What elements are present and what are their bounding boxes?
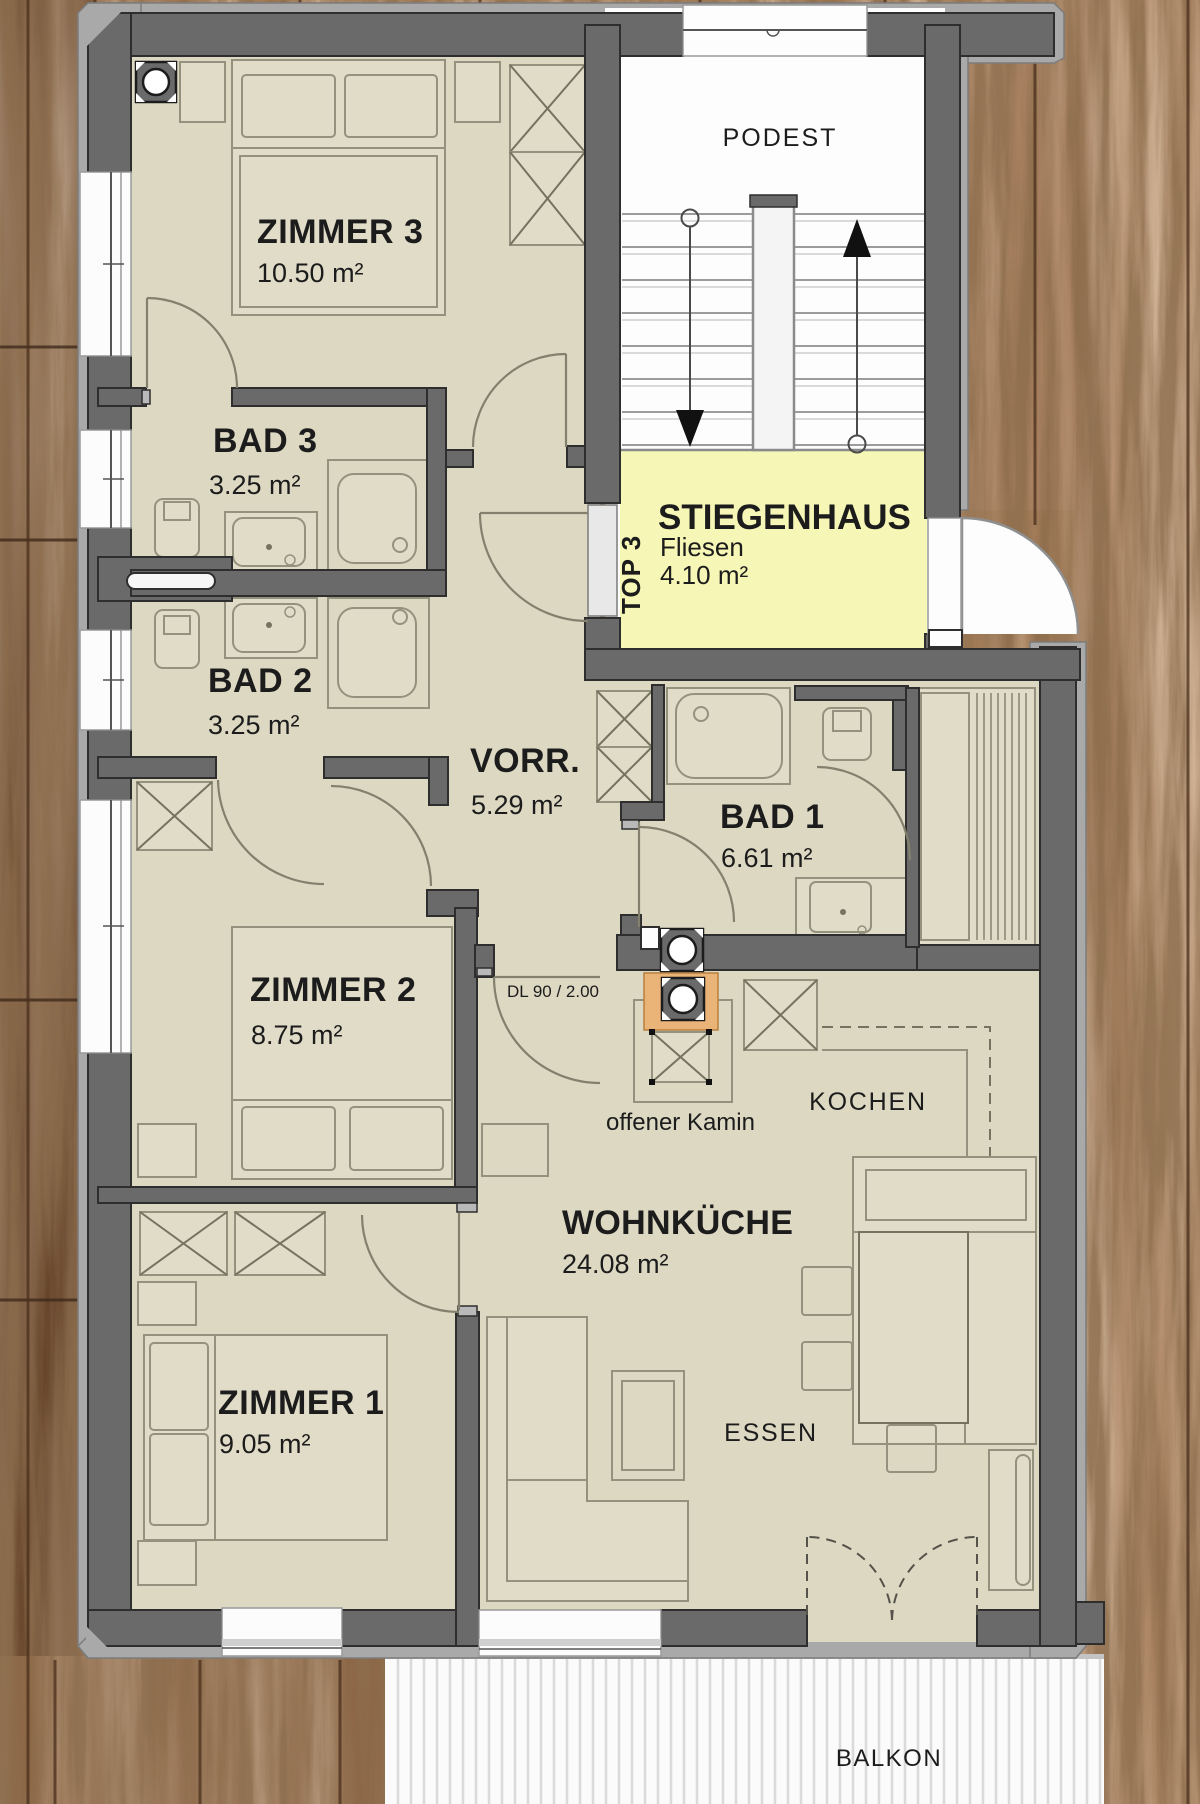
svg-text:4.10 m²: 4.10 m² (660, 560, 748, 590)
svg-text:BAD 1: BAD 1 (720, 798, 825, 836)
svg-text:9.05 m²: 9.05 m² (219, 1429, 311, 1459)
svg-text:BALKON: BALKON (836, 1745, 942, 1772)
svg-text:8.75 m²: 8.75 m² (251, 1020, 343, 1050)
svg-text:10.50 m²: 10.50 m² (257, 258, 364, 288)
svg-text:DL 90 / 2.00: DL 90 / 2.00 (507, 982, 599, 1001)
svg-text:WOHNKÜCHE: WOHNKÜCHE (562, 1204, 793, 1242)
svg-text:ESSEN: ESSEN (724, 1419, 818, 1447)
svg-text:KOCHEN: KOCHEN (809, 1088, 927, 1116)
svg-text:VORR.: VORR. (470, 742, 580, 780)
svg-text:3.25 m²: 3.25 m² (208, 710, 300, 740)
svg-text:ZIMMER 1: ZIMMER 1 (218, 1384, 384, 1422)
svg-text:5.29 m²: 5.29 m² (471, 790, 563, 820)
svg-text:24.08 m²: 24.08 m² (562, 1249, 669, 1279)
svg-text:6.61 m²: 6.61 m² (721, 843, 813, 873)
svg-text:Fliesen: Fliesen (660, 532, 744, 562)
svg-text:offener Kamin: offener Kamin (606, 1109, 755, 1136)
svg-text:PODEST: PODEST (723, 124, 838, 152)
svg-text:TOP 3: TOP 3 (616, 535, 646, 614)
svg-text:3.25 m²: 3.25 m² (209, 470, 301, 500)
svg-text:ZIMMER 3: ZIMMER 3 (257, 213, 423, 251)
svg-text:BAD 2: BAD 2 (208, 662, 313, 700)
svg-text:BAD 3: BAD 3 (213, 422, 318, 460)
svg-text:ZIMMER 2: ZIMMER 2 (250, 971, 416, 1009)
